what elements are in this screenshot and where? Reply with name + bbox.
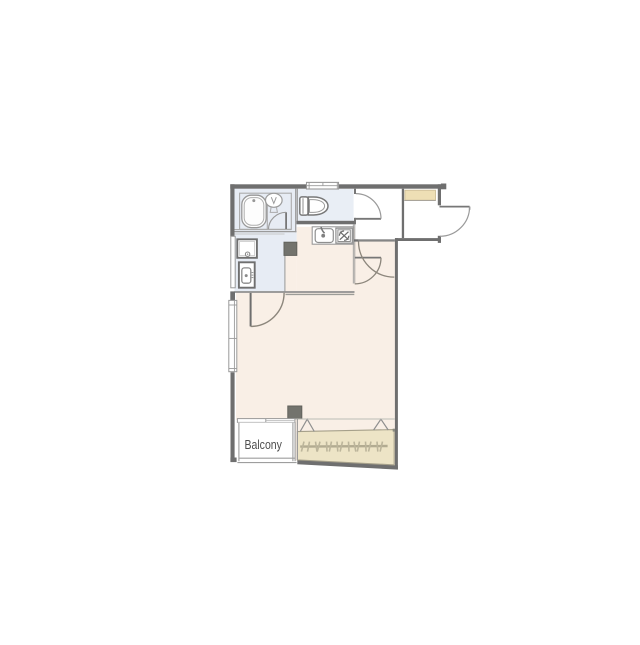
svg-text:Balcony: Balcony [244, 438, 282, 452]
